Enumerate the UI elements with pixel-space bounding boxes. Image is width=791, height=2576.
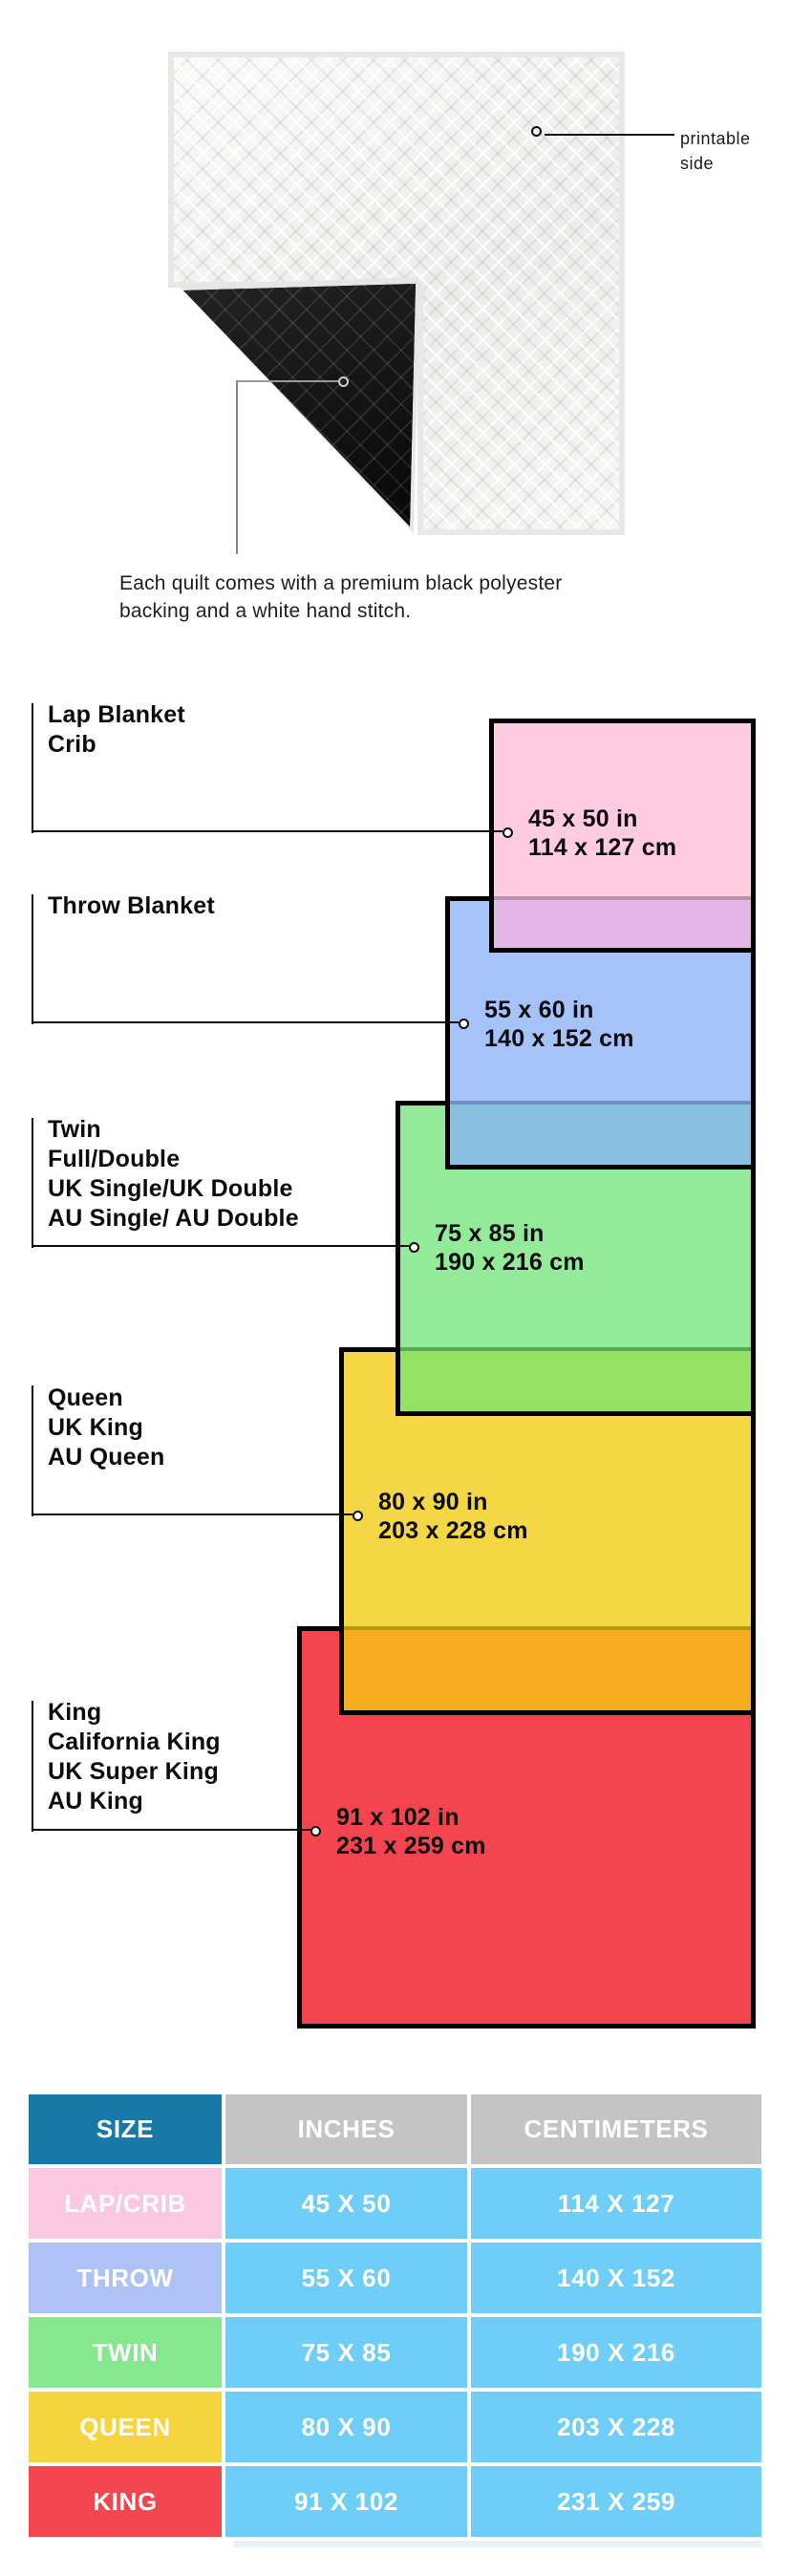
label-line: AU Single/ AU Double [48,1204,299,1234]
leader-line-king-horizontal [32,1829,310,1831]
quilt-caption-line2: backing and a white hand stitch. [119,597,731,625]
printable-side-label-line1: printable [680,126,751,151]
table-cell-cm: 203 X 228 [471,2392,761,2462]
label-king: King California King UK Super King AU Ki… [48,1698,221,1816]
label-line: King [48,1698,221,1728]
leader-line-twin-horizontal [32,1245,409,1247]
dims-throw: 55 x 60 in 140 x 152 cm [484,996,634,1053]
label-queen: Queen UK King AU Queen [48,1384,164,1472]
label-line: Full/Double [48,1145,299,1174]
table-cell-inches: 75 X 85 [225,2317,467,2388]
table-cell-cm: 114 X 127 [471,2168,761,2239]
table-cell-inches: 80 X 90 [225,2392,467,2462]
overlap-band-lap-throw [494,896,751,948]
leader-line-queen [32,1385,33,1516]
dims-inches: 55 x 60 in [484,996,634,1024]
table-shadow [233,2541,761,2547]
dims-cm: 114 x 127 cm [528,833,676,862]
size-table: SIZE INCHES CENTIMETERS LAP/CRIB 45 X 50… [29,2094,761,2537]
table-cell-cm: 140 X 152 [471,2243,761,2313]
table-cell-inches: 55 X 60 [225,2243,467,2313]
dims-inches: 80 x 90 in [378,1488,528,1516]
table-cell-inches: 45 X 50 [225,2168,467,2239]
overlap-band-throw-twin [450,1101,751,1165]
dims-cm: 203 x 228 cm [378,1516,528,1545]
label-line: Twin [48,1115,299,1145]
table-cell-cm: 190 X 216 [471,2317,761,2388]
dims-lap: 45 x 50 in 114 x 127 cm [528,805,676,862]
label-line: Crib [48,730,185,760]
printable-side-leader-line [545,134,674,136]
dims-inches: 45 x 50 in [528,805,676,833]
table-row-label: QUEEN [29,2392,222,2462]
dims-cm: 190 x 216 cm [435,1248,585,1277]
marker-dot-twin [409,1242,419,1253]
dims-inches: 75 x 85 in [435,1219,585,1248]
table-row-label: LAP/CRIB [29,2168,222,2239]
dims-cm: 231 x 259 cm [336,1832,486,1860]
label-line: AU Queen [48,1443,164,1472]
dims-inches: 91 x 102 in [336,1803,486,1832]
marker-dot-king [310,1826,321,1836]
dims-cm: 140 x 152 cm [484,1024,634,1053]
backing-marker-icon [338,376,349,387]
marker-dot-queen [353,1511,363,1521]
leader-line-throw [32,894,33,1024]
label-line: UK Single/UK Double [48,1174,299,1204]
quilt-caption: Each quilt comes with a premium black po… [119,569,731,625]
label-lap-crib: Lap Blanket Crib [48,700,185,760]
label-line: Queen [48,1384,164,1413]
table-cell-cm: 231 X 259 [471,2466,761,2537]
label-line: UK King [48,1413,164,1443]
label-throw: Throw Blanket [48,891,215,921]
quilt-caption-line1: Each quilt comes with a premium black po… [119,569,731,597]
leader-line-queen-horizontal [32,1513,353,1515]
marker-dot-throw [459,1019,469,1029]
dims-queen: 80 x 90 in 203 x 228 cm [378,1488,528,1545]
dims-twin: 75 x 85 in 190 x 216 cm [435,1219,585,1277]
leader-line-lap [32,703,33,833]
quilt-folded-corner [178,275,420,533]
printable-side-label-line2: side [680,151,751,176]
leader-line-king [32,1701,33,1832]
label-line: Lap Blanket [48,700,185,730]
label-line: Throw Blanket [48,891,215,921]
quilt-black-backing [178,275,420,533]
table-header-inches: INCHES [225,2094,467,2164]
overlap-band-queen-king [344,1626,751,1710]
leader-line-throw-horizontal [32,1021,459,1023]
table-row-label: KING [29,2466,222,2537]
table-cell-inches: 91 X 102 [225,2466,467,2537]
printable-side-label: printable side [680,126,751,176]
leader-line-lap-horizontal [32,830,502,832]
leader-line-twin [32,1118,33,1248]
label-line: UK Super King [48,1757,221,1787]
label-twin: Twin Full/Double UK Single/UK Double AU … [48,1115,299,1234]
backing-leader-line-horizontal [236,380,338,382]
label-line: California King [48,1728,221,1757]
table-row-label: THROW [29,2243,222,2313]
table-header-size: SIZE [29,2094,222,2164]
backing-leader-line-vertical [236,380,238,554]
marker-dot-lap [502,827,513,838]
quilt-size-guide-page: printable side Each quilt comes with a p… [0,0,791,2576]
label-line: AU King [48,1787,221,1816]
dims-king: 91 x 102 in 231 x 259 cm [336,1803,486,1860]
table-row-label: TWIN [29,2317,222,2388]
printable-side-marker-icon [531,126,542,137]
table-header-centimeters: CENTIMETERS [471,2094,761,2164]
overlap-band-twin-queen [400,1347,751,1411]
